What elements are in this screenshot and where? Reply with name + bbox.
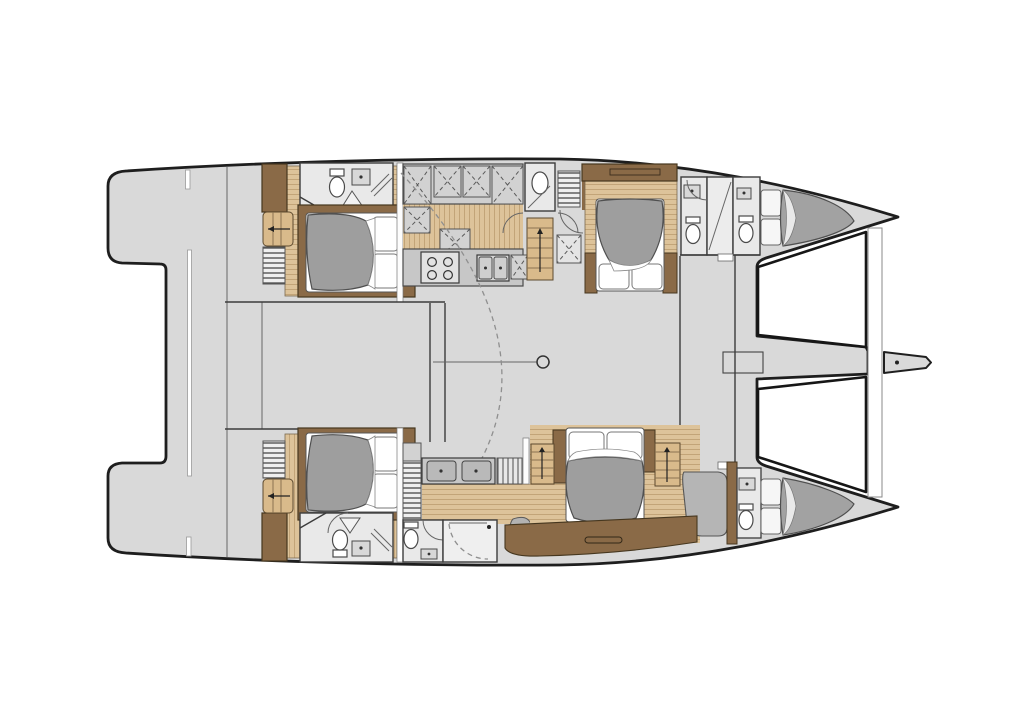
- owner-wc: [403, 520, 443, 562]
- floor-plan-svg: [0, 0, 1024, 724]
- bulkhead-gap: [523, 438, 529, 484]
- hanging-locker: [497, 458, 522, 484]
- platform-groove-center: [188, 250, 192, 476]
- mast-post: [537, 356, 549, 368]
- galley-double-sink-icon: [477, 255, 509, 281]
- bed-side-cabinet: [585, 253, 597, 293]
- sink-icon: [739, 478, 755, 490]
- bed-side-cabinet: [663, 253, 677, 293]
- double-vanity: [422, 458, 495, 484]
- bed-side-cabinet: [553, 430, 567, 483]
- starboard-aft-cabin: [262, 428, 415, 562]
- stove-icon: [421, 252, 459, 283]
- stairs-forward: [655, 443, 680, 486]
- forward-crossbeam: [868, 228, 882, 497]
- sink-icon: [684, 185, 700, 198]
- cabinet-panel: [403, 443, 421, 461]
- pillow: [373, 254, 398, 288]
- stairs-to-hull: [527, 218, 553, 280]
- catamaran-floor-plan-canvas: [0, 0, 1024, 724]
- toilet-icon: [330, 169, 345, 197]
- toilet-icon: [686, 217, 700, 244]
- divider-cabinet: [727, 462, 737, 544]
- bowsprit-fitting-dot: [895, 361, 899, 365]
- duvet: [307, 214, 374, 290]
- toilet-icon: [333, 530, 348, 557]
- double-bed: [306, 433, 402, 512]
- locker-slot: [718, 254, 733, 261]
- shelf-locker: [263, 247, 285, 284]
- bulkhead-gap: [397, 428, 403, 562]
- berth-pad: [761, 190, 781, 216]
- duvet: [597, 199, 663, 266]
- platform-groove-top: [186, 170, 191, 189]
- hinge-dot: [487, 525, 491, 529]
- shelf-locker: [263, 441, 285, 478]
- pillow: [373, 437, 398, 471]
- sink-icon: [352, 169, 370, 185]
- pillow: [373, 217, 398, 251]
- sink-icon: [352, 541, 370, 556]
- berth-pad: [761, 219, 781, 245]
- bulkhead-gap: [397, 163, 403, 302]
- toilet-icon: [404, 530, 418, 549]
- berth-pad: [761, 479, 781, 505]
- day-head: [525, 163, 555, 211]
- shower-tray: [557, 235, 581, 263]
- companionway-steps: [263, 212, 293, 246]
- wardrobe: [262, 164, 287, 212]
- vent-locker: [558, 171, 580, 207]
- overhead-locker-icon: [492, 166, 523, 204]
- overhead-locker-icon: [463, 166, 490, 197]
- toilet-icon: [404, 522, 418, 528]
- stairs-to-hull: [531, 444, 554, 484]
- counter-locker-icon: [511, 255, 528, 279]
- duvet: [566, 457, 644, 523]
- pillow: [373, 474, 398, 508]
- sink-icon: [421, 549, 437, 559]
- companionway-steps: [263, 479, 293, 513]
- double-bed: [596, 199, 664, 291]
- shelf-locker: [403, 461, 421, 520]
- forward-bathrooms: [681, 177, 760, 255]
- bowsprit: [884, 352, 931, 373]
- owner-double-bed: [566, 428, 644, 523]
- shower-room: [443, 520, 497, 562]
- sink-icon: [737, 188, 751, 199]
- port-aft-cabin: [262, 163, 415, 297]
- overhead-locker-icon: [434, 166, 461, 197]
- wardrobe: [262, 513, 287, 561]
- berth-pad: [761, 508, 781, 534]
- headboard-cabinet: [582, 164, 677, 181]
- toilet-icon: [739, 504, 753, 530]
- double-bed: [306, 213, 402, 292]
- toilet-icon: [739, 216, 753, 243]
- overhead-locker-icon: [404, 207, 430, 233]
- overhead-locker-icon: [404, 166, 431, 204]
- platform-groove-bottom: [187, 537, 192, 556]
- duvet: [307, 435, 374, 511]
